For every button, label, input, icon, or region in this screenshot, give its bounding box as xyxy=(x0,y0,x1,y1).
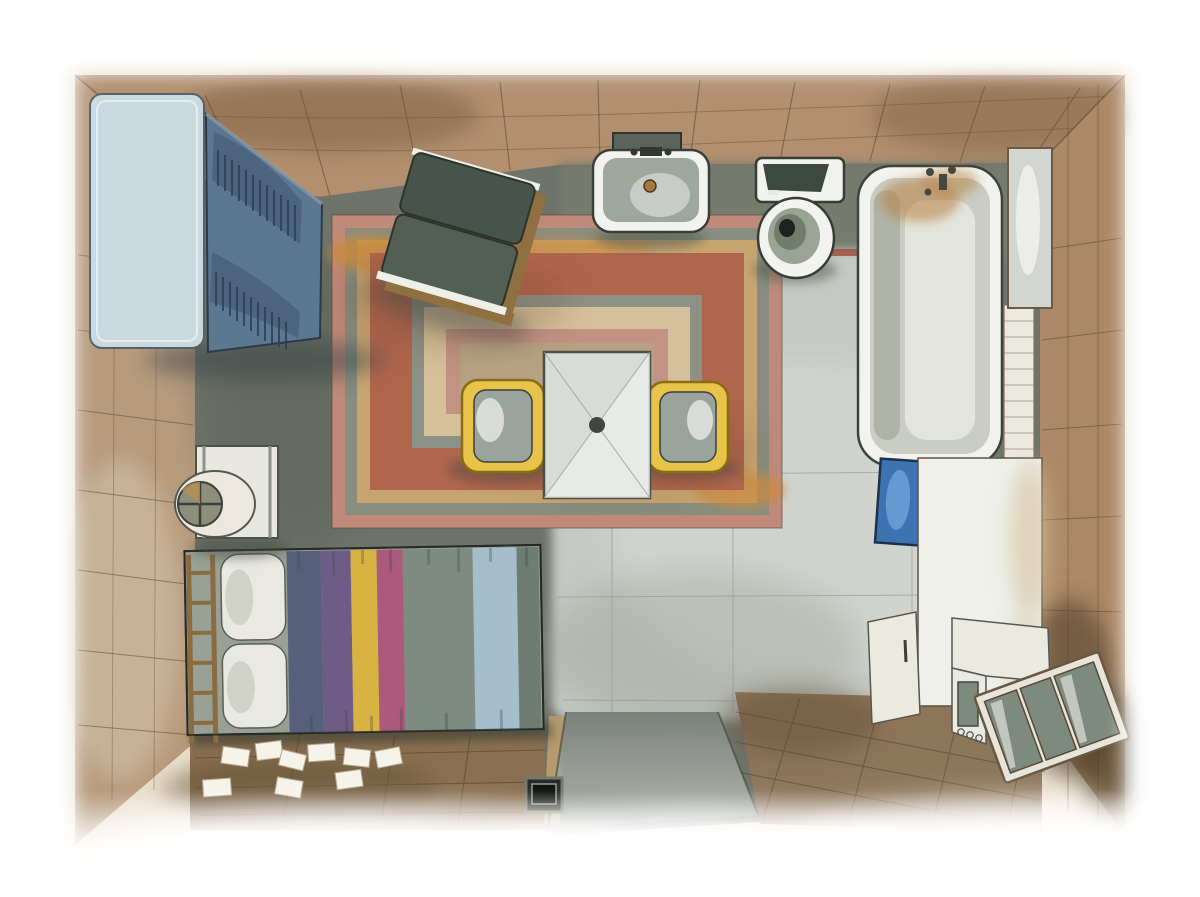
tile-strip xyxy=(1004,305,1034,465)
stove-knob xyxy=(958,729,964,735)
blanket-stripe xyxy=(320,550,353,732)
oven-window xyxy=(958,682,978,726)
blanket-stripe xyxy=(376,549,405,731)
toilet xyxy=(753,158,844,283)
blanket-stripe xyxy=(286,551,323,734)
faucet-handle xyxy=(631,149,638,156)
sink-faucet xyxy=(640,147,662,156)
paper-sheet xyxy=(343,748,371,768)
sink-basin-highlight xyxy=(630,173,690,217)
paper-sheet xyxy=(307,743,335,762)
tub-spout xyxy=(939,174,947,190)
counter-face xyxy=(868,612,920,724)
seat-highlight xyxy=(687,400,713,440)
faucet-handle xyxy=(665,149,672,156)
tub-interior-highlight xyxy=(905,200,975,440)
tub-interior-shade xyxy=(874,190,900,440)
edge-fade-top xyxy=(0,0,1200,72)
paper-sheet xyxy=(335,769,363,789)
nightstand-shadow xyxy=(192,537,288,559)
cabinet-handle xyxy=(905,640,906,662)
striped-blanket xyxy=(286,547,541,733)
floor-stain xyxy=(720,685,880,755)
kitchen-counter xyxy=(868,612,920,724)
wash-basin xyxy=(593,133,709,249)
table-pedestal xyxy=(589,417,605,433)
fan-lamp xyxy=(175,471,255,537)
blanket-stripe xyxy=(472,547,519,730)
mirror-highlight xyxy=(1016,165,1040,275)
sink-drain xyxy=(644,180,656,192)
cistern-interior xyxy=(763,164,829,192)
stove-knob xyxy=(967,732,973,738)
partition-stain xyxy=(1010,460,1050,620)
seat-highlight xyxy=(476,398,504,442)
blanket-stripe xyxy=(350,550,379,732)
bowl-drain xyxy=(779,219,795,237)
edge-fade-left xyxy=(0,0,74,897)
blanket-stripe xyxy=(516,547,541,729)
wardrobe-top-face xyxy=(90,94,204,348)
stove-knob xyxy=(976,735,982,741)
tub-drain xyxy=(925,189,932,196)
tub-tap xyxy=(948,166,956,174)
tub-tap xyxy=(926,168,934,176)
bed xyxy=(184,545,551,745)
blanket-stripe xyxy=(402,548,475,731)
floor-plan-illustration xyxy=(0,0,1200,897)
watercolor-painting xyxy=(0,0,1200,897)
bathtub xyxy=(858,166,1002,466)
edge-fade-right xyxy=(1126,0,1200,897)
flush-button xyxy=(768,190,778,195)
paper-sheet xyxy=(221,746,250,767)
paper-sheet xyxy=(255,740,283,760)
